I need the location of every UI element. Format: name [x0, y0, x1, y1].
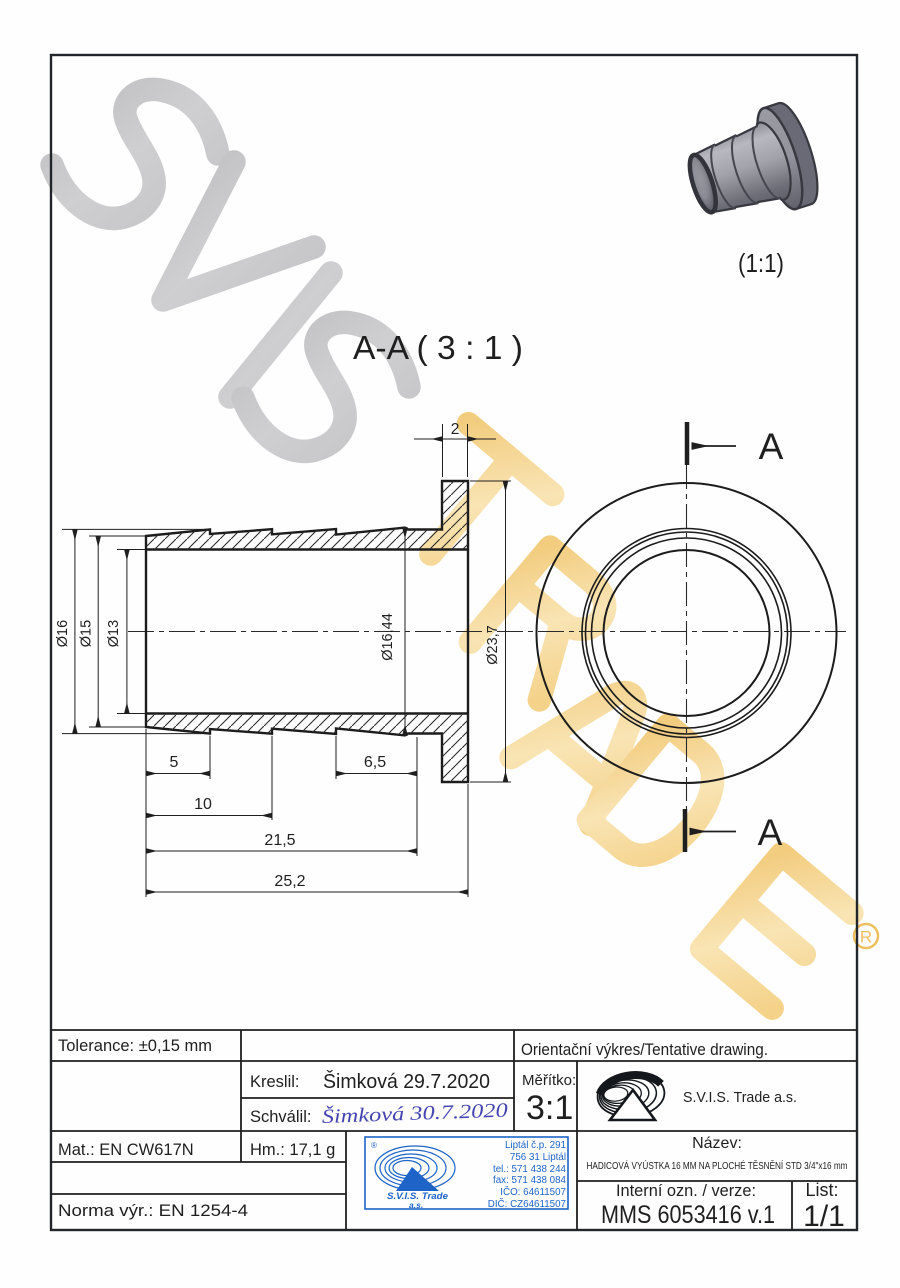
svg-text:Mat.: EN CW617N: Mat.: EN CW617N — [58, 1141, 194, 1159]
svg-text:21,5: 21,5 — [264, 832, 295, 849]
svg-text:Ø23,7: Ø23,7 — [485, 625, 501, 665]
svg-text:HADICOVÁ VYÚSTKA 16 MM NA PLOC: HADICOVÁ VYÚSTKA 16 MM NA PLOCHÉ TĚSNĚNÍ… — [587, 1159, 848, 1172]
svg-text:Hm.: 17,1 g: Hm.: 17,1 g — [250, 1141, 335, 1159]
svg-text:S.V.I.S. Trade a.s.: S.V.I.S. Trade a.s. — [683, 1089, 797, 1106]
svg-text:5: 5 — [170, 754, 179, 771]
svg-text:Schválil:: Schválil: — [250, 1108, 311, 1126]
svg-text:Název:: Název: — [692, 1135, 742, 1152]
svg-text:A: A — [758, 812, 783, 853]
svg-text:2: 2 — [451, 421, 460, 438]
svg-text:a.s.: a.s. — [409, 1200, 423, 1210]
svg-text:25,2: 25,2 — [274, 873, 305, 890]
svg-text:Norma výr.: EN 1254-4: Norma výr.: EN 1254-4 — [58, 1202, 248, 1220]
svg-text:Ø16,44: Ø16,44 — [380, 613, 396, 661]
svg-text:(1:1): (1:1) — [738, 248, 784, 278]
svg-text:Měřítko:: Měřítko: — [522, 1072, 576, 1089]
svg-text:Orientační výkres/Tentative dr: Orientační výkres/Tentative drawing. — [521, 1041, 768, 1059]
svg-text:Tolerance: ±0,15 mm: Tolerance: ±0,15 mm — [58, 1037, 212, 1055]
svg-text:Ø15: Ø15 — [79, 620, 95, 647]
svg-text:A: A — [759, 426, 784, 467]
svg-text:tel.: 571 438 244: tel.: 571 438 244 — [493, 1164, 567, 1175]
svg-text:fax: 571 438 084: fax: 571 438 084 — [493, 1175, 567, 1186]
svg-text:DIČ: CZ64611507: DIČ: CZ64611507 — [488, 1199, 566, 1210]
svg-text:Liptál č.p. 291: Liptál č.p. 291 — [505, 1140, 566, 1151]
svg-text:Kreslil:: Kreslil: — [250, 1073, 300, 1091]
svg-text:Interní ozn. / verze:: Interní ozn. / verze: — [616, 1182, 756, 1200]
svg-text:10: 10 — [194, 796, 212, 813]
svg-text:List:: List: — [805, 1180, 838, 1200]
svg-text:A-A ( 3 : 1 ): A-A ( 3 : 1 ) — [353, 329, 523, 366]
svg-text:IČO: 64611507: IČO: 64611507 — [500, 1187, 566, 1198]
svg-text:6,5: 6,5 — [364, 754, 386, 771]
svg-text:Ø13: Ø13 — [106, 620, 122, 647]
svg-text:1/1: 1/1 — [803, 1200, 845, 1233]
svg-text:3:1: 3:1 — [526, 1089, 573, 1127]
svg-text:®: ® — [371, 1141, 377, 1150]
svg-text:MMS 6053416 v.1: MMS 6053416 v.1 — [601, 1201, 775, 1229]
svg-text:R: R — [860, 928, 872, 947]
svg-text:Ø16: Ø16 — [55, 620, 71, 647]
svg-text:756 31 Liptál: 756 31 Liptál — [510, 1152, 566, 1163]
svg-text:Šimková 29.7.2020: Šimková 29.7.2020 — [323, 1070, 490, 1093]
